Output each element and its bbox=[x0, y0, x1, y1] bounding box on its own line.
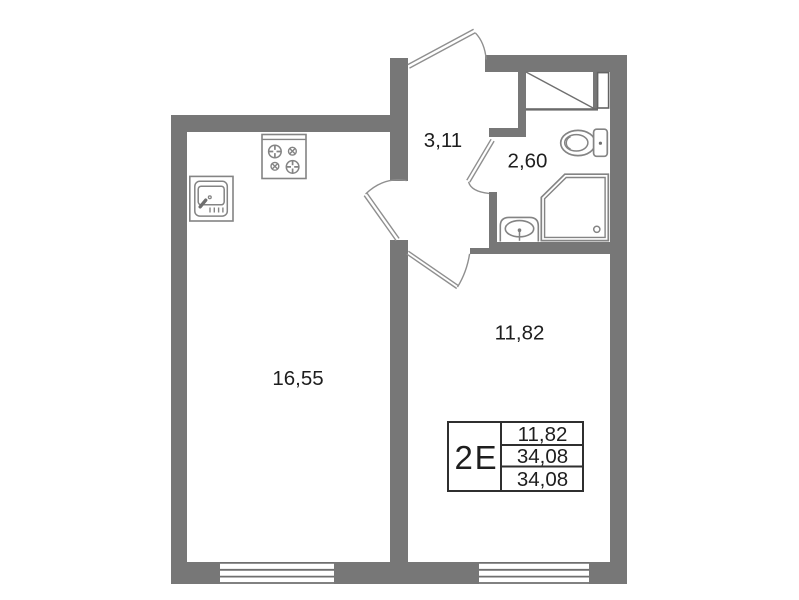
svg-text:34,08: 34,08 bbox=[517, 468, 568, 491]
svg-text:3,11: 3,11 bbox=[424, 129, 462, 152]
svg-text:11,82: 11,82 bbox=[495, 322, 545, 345]
svg-text:2E: 2E bbox=[455, 439, 499, 476]
svg-text:11,82: 11,82 bbox=[518, 423, 568, 446]
svg-text:2,60: 2,60 bbox=[508, 150, 548, 173]
svg-text:34,08: 34,08 bbox=[517, 445, 568, 468]
svg-text:16,55: 16,55 bbox=[272, 367, 323, 390]
